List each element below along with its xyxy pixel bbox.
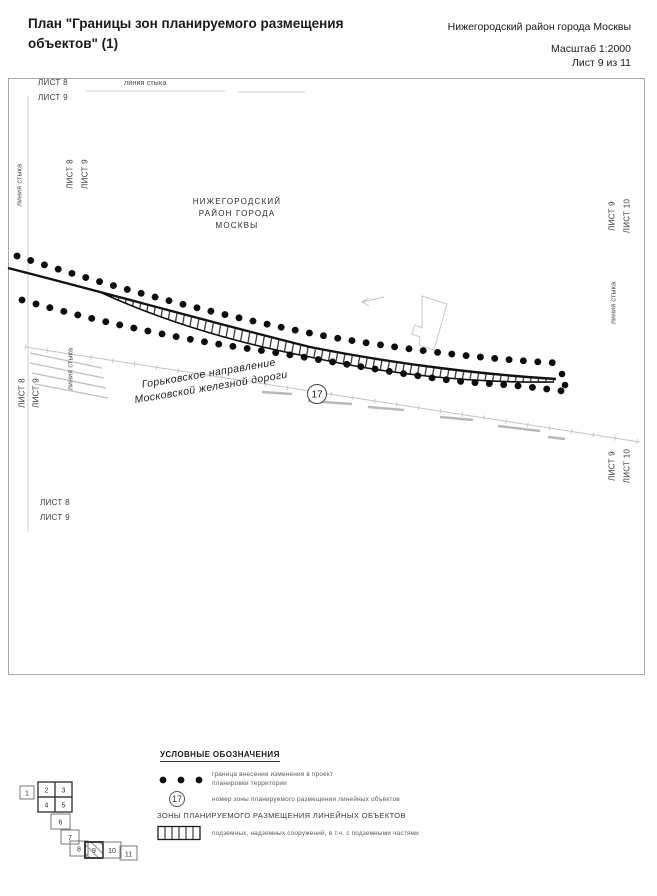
matchline-left-upper-joint: линия стыка (17, 164, 24, 207)
legend-item-zone-number-label: номер зоны планируемого размещения линей… (212, 796, 400, 805)
zone-number-text: 17 (311, 390, 323, 401)
index-sheet-9: 9 (92, 848, 96, 855)
index-sheet-10: 10 (108, 848, 116, 855)
sheet-index-diagram: 1 2 3 4 5 6 7 8 9 10 11 (20, 782, 137, 860)
dotted-boundary-end (559, 371, 569, 389)
legend-header: УСЛОВНЫЕ ОБОЗНАЧЕНИЯ (160, 750, 280, 762)
matchline-left-lower-joint: линия стыка (68, 348, 75, 391)
platform-dashes (262, 392, 565, 439)
matchline-left-lower-sheet9: ЛИСТ 9 (32, 378, 41, 408)
matchline-right-lower-sheet10: ЛИСТ 10 (623, 449, 632, 484)
legend-symbol-dots (160, 777, 203, 784)
index-sheet-11: 11 (125, 852, 132, 859)
matchline-left-lower-sheet8: ЛИСТ 8 (18, 378, 27, 408)
index-sheet-7: 7 (68, 835, 72, 842)
legend-item-boundary-label: граница внесения изменения в проект план… (212, 771, 333, 788)
building-outline (412, 296, 447, 350)
matchline-top-joint: линия стыка (124, 80, 167, 87)
index-sheet-6: 6 (59, 820, 63, 827)
index-sheet-1: 1 (25, 791, 29, 798)
matchline-top-sheet8: ЛИСТ 8 (38, 78, 68, 87)
index-sheet-3: 3 (62, 788, 66, 795)
matchline-right-upper-sheet10: ЛИСТ 10 (623, 199, 632, 234)
background-topography (25, 91, 640, 532)
matchline-left-upper-sheet8: ЛИСТ 8 (66, 159, 75, 189)
plan-sheet-page: План "Границы зон планируемого размещени… (0, 0, 657, 896)
index-sheet-2: 2 (45, 788, 49, 795)
dotted-boundary (17, 256, 562, 391)
map-canvas: 17 17 (0, 0, 657, 896)
matchline-right-lower-sheet9: ЛИСТ 9 (608, 451, 617, 481)
legend-symbol-hatched-band (158, 827, 200, 840)
index-sheet-4: 4 (45, 803, 49, 810)
district-area-label: НИЖЕГОРОДСКИЙ РАЙОН ГОРОДА МОСКВЫ (193, 196, 282, 232)
matchline-left-upper-sheet9: ЛИСТ 9 (81, 159, 90, 189)
legend-symbol-zone-circle: 17 (170, 792, 185, 807)
matchline-top-sheet9: ЛИСТ 9 (38, 93, 68, 102)
matchline-right-upper-sheet9: ЛИСТ 9 (608, 201, 617, 231)
zone-number-marker: 17 (308, 385, 327, 404)
index-sheet-5: 5 (62, 803, 66, 810)
legend-subheader: ЗОНЫ ПЛАНИРУЕМОГО РАЗМЕЩЕНИЯ ЛИНЕЙНЫХ ОБ… (157, 811, 406, 820)
small-arrow (362, 297, 384, 306)
matchline-bottomleft-sheet9: ЛИСТ 9 (40, 513, 70, 522)
index-sheet-8: 8 (77, 847, 81, 854)
matchline-right-joint: линия стыка (611, 282, 618, 325)
legend-zone-number-text: 17 (172, 794, 182, 804)
legend-item-structures-label: подземных, надземных сооружений, в т.ч. … (212, 830, 419, 839)
band-bottom-edge (102, 293, 554, 382)
matchline-bottomleft-sheet8: ЛИСТ 8 (40, 498, 70, 507)
